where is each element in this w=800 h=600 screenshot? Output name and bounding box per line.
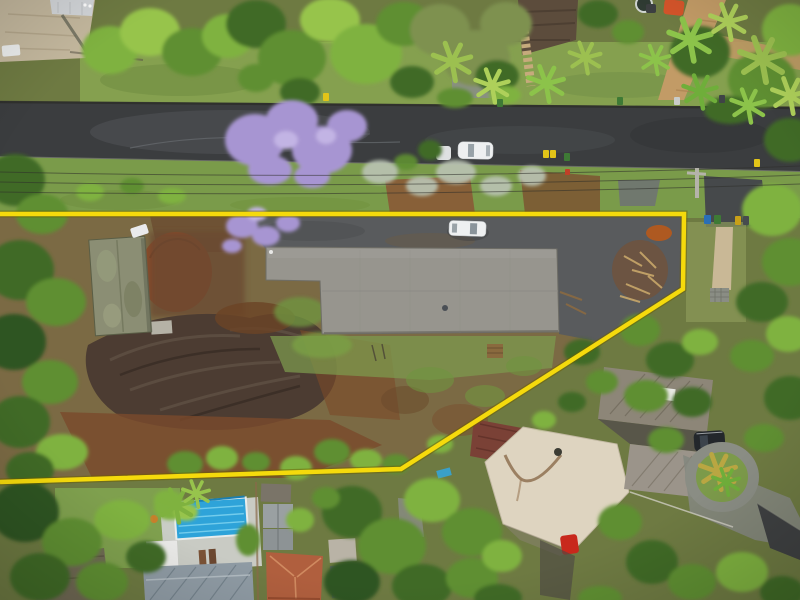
aerial-photo-canvas (0, 0, 800, 600)
aerial-photo (0, 0, 800, 600)
vignette (0, 0, 800, 600)
